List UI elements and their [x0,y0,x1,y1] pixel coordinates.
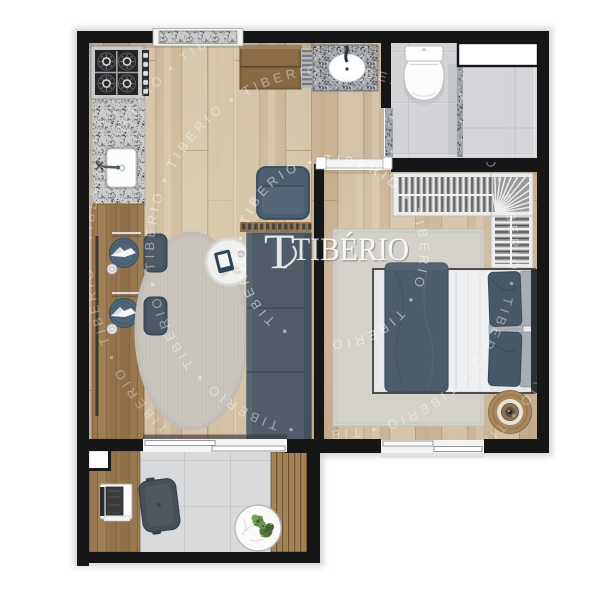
svg-text:TIBÉRIO: TIBÉRIO [292,231,409,268]
svg-text:T: T [264,223,295,279]
